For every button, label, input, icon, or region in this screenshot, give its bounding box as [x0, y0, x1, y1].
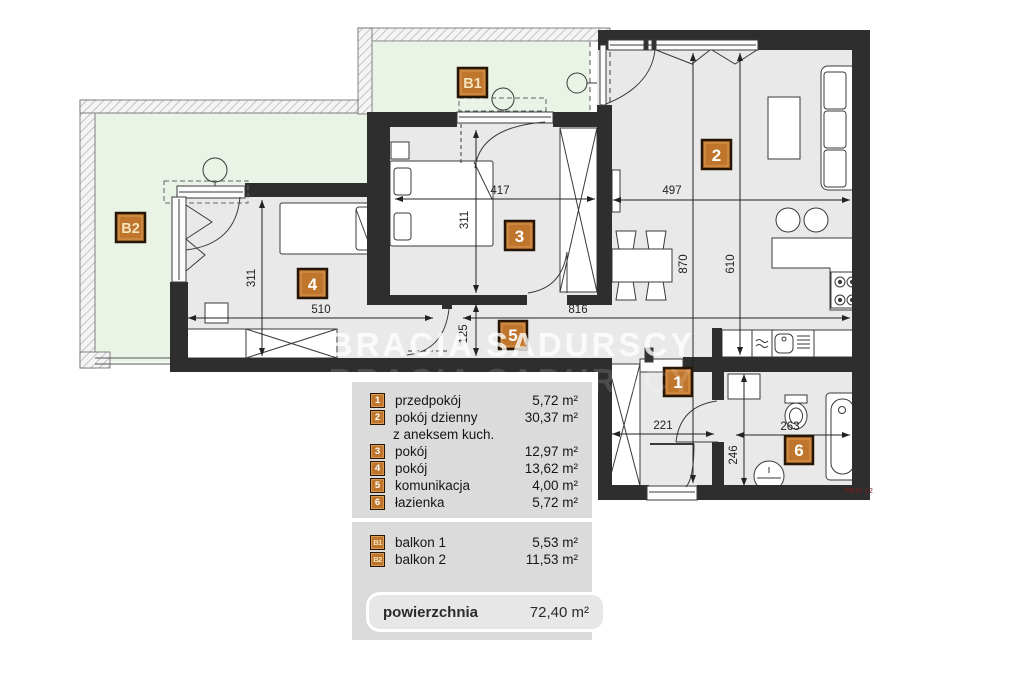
- dim-living-width: 497: [662, 185, 681, 197]
- dim-bath-width: 263: [780, 421, 799, 433]
- plan-ref-text: REIS 12: [845, 486, 873, 495]
- dining-table: [612, 249, 672, 282]
- room-name: pokój: [395, 444, 525, 459]
- badge-room-6: 6: [785, 436, 813, 464]
- legend-badge-3: 3: [370, 444, 385, 459]
- svg-text:6: 6: [794, 441, 803, 460]
- balcony-name: balkon 1: [395, 535, 532, 550]
- svg-text:2: 2: [712, 146, 721, 165]
- legend-row-room4: 4 pokój 13,62 m²: [370, 460, 578, 477]
- room-area: 4,00 m²: [532, 478, 578, 493]
- total-area-value: 72,40 m²: [530, 604, 589, 621]
- watermark: BRACIA SADURSCY: [329, 326, 695, 363]
- room-area: 13,62 m²: [525, 461, 578, 476]
- room-area: 12,97 m²: [525, 444, 578, 459]
- room-area: 5,72 m²: [532, 495, 578, 510]
- badge-room-3: 3: [505, 221, 534, 250]
- floor-plan-page: 417 497 311 870 610 311 510 816 125 221 …: [0, 0, 1025, 688]
- legend-badge-5: 5: [370, 478, 385, 493]
- dim-room4-width: 510: [311, 304, 330, 316]
- dim-room3-width: 417: [490, 185, 509, 197]
- legend-badge-b1: B1: [370, 535, 385, 550]
- dim-corridor-width: 816: [568, 304, 587, 316]
- balcony-name: balkon 2: [395, 552, 526, 567]
- svg-text:B2: B2: [121, 221, 140, 237]
- room-name: przedpokój: [395, 393, 532, 408]
- legend-badge-b2: B2: [370, 552, 385, 567]
- balcony-area: 5,53 m²: [532, 535, 578, 550]
- room-area: 5,72 m²: [532, 393, 578, 408]
- svg-text:3: 3: [515, 227, 524, 246]
- legend-badge-6: 6: [370, 495, 385, 510]
- washing-machine: [722, 330, 752, 357]
- bar-stool: [804, 208, 828, 232]
- legend-badge-4: 4: [370, 461, 385, 476]
- dim-room4-height: 311: [246, 269, 258, 287]
- dim-living-height-b: 610: [725, 254, 737, 273]
- svg-text:4: 4: [308, 275, 318, 294]
- legend-row-room1: 1 przedpokój 5,72 m²: [370, 392, 578, 409]
- room-name: pokój: [395, 461, 525, 476]
- radiator: [612, 170, 620, 212]
- badge-balcony-1: B1: [458, 68, 487, 97]
- room-name-wrap: z aneksem kuch.: [370, 426, 578, 443]
- room-name: łazienka: [395, 495, 532, 510]
- dim-room3-height: 311: [459, 211, 471, 229]
- legend-row-balcony1: B1 balkon 1 5,53 m²: [370, 534, 578, 551]
- room-name: komunikacja: [395, 478, 532, 493]
- legend-row-room5: 5 komunikacja 4,00 m²: [370, 477, 578, 494]
- svg-text:B1: B1: [463, 76, 482, 92]
- badge-room-2: 2: [702, 140, 731, 169]
- legend-badge-2: 2: [370, 410, 385, 425]
- coffee-table: [768, 97, 800, 159]
- room-name: pokój dzienny: [395, 410, 525, 425]
- total-area-label: powierzchnia: [383, 604, 478, 621]
- badge-balcony-2: B2: [116, 213, 145, 242]
- legend-row-balcony2: B2 balkon 2 11,53 m²: [370, 551, 578, 568]
- legend-row-room3: 3 pokój 12,97 m²: [370, 443, 578, 460]
- total-area-pill: powierzchnia 72,40 m²: [366, 592, 606, 632]
- legend-row-room6: 6 łazienka 5,72 m²: [370, 494, 578, 511]
- dim-hall-width: 221: [653, 420, 672, 432]
- legend-badge-1: 1: [370, 393, 385, 408]
- room-area: 30,37 m²: [525, 410, 578, 425]
- dim-living-height-a: 870: [678, 254, 690, 273]
- balcony-area: 11,53 m²: [526, 552, 578, 567]
- legend-row-room2: 2 pokój dzienny 30,37 m²: [370, 409, 578, 426]
- toilet: [785, 395, 807, 403]
- badge-room-4: 4: [298, 269, 327, 298]
- legend-rooms: 1 przedpokój 5,72 m² 2 pokój dzienny 30,…: [352, 382, 592, 518]
- dim-bath-height: 246: [728, 445, 740, 464]
- bar-stool: [776, 208, 800, 232]
